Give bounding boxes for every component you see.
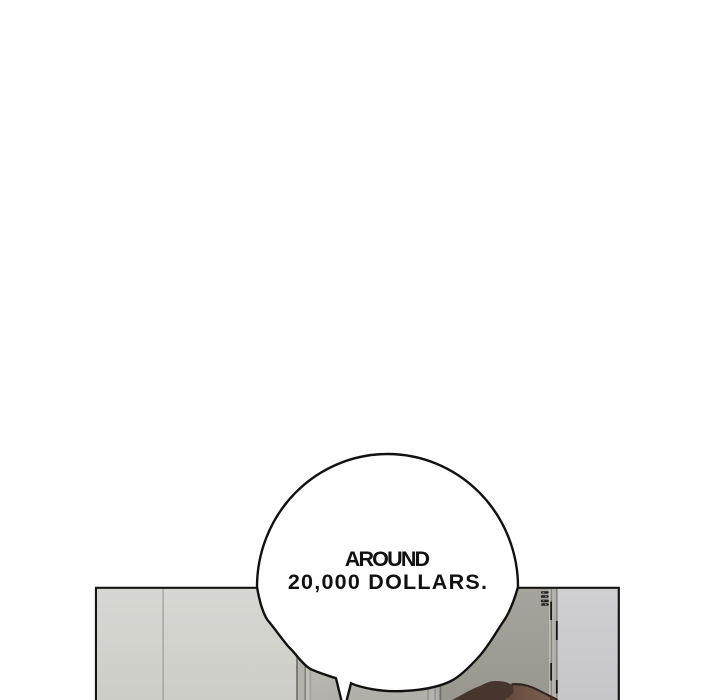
svg-text:20,000 DOLLARS.: 20,000 DOLLARS. [288,570,488,594]
svg-text:AROUND: AROUND [345,547,430,571]
